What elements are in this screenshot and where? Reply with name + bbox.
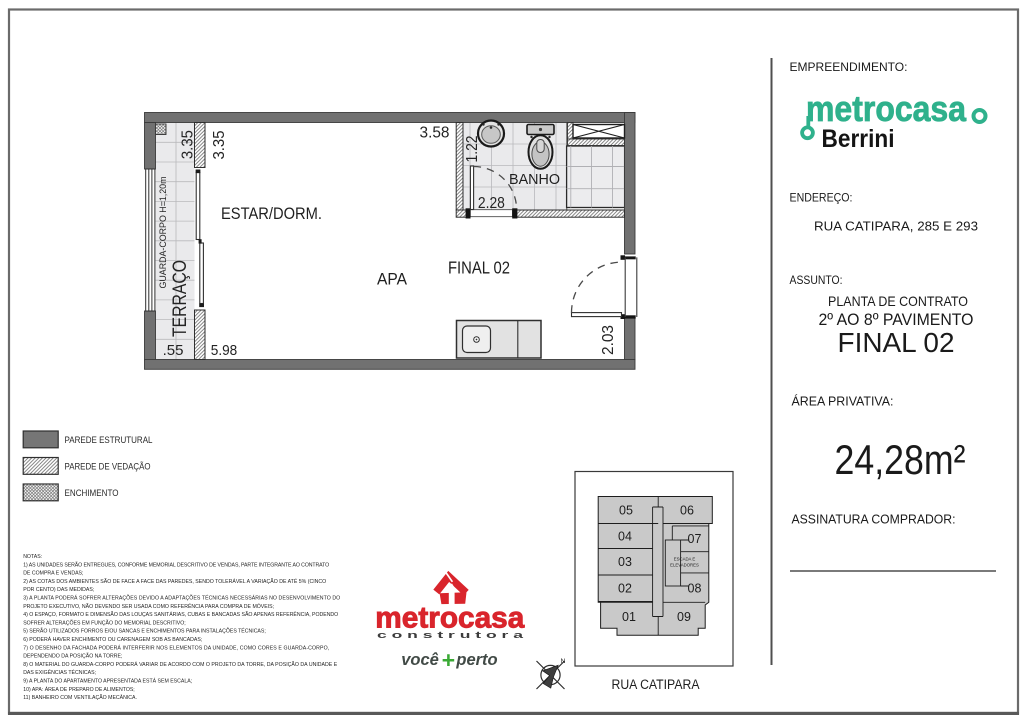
svg-text:24,28m²: 24,28m² (835, 436, 966, 483)
svg-text:8) O MATERIAL DO GUARDA-CORPO: 8) O MATERIAL DO GUARDA-CORPO PODERÁ VAR… (23, 661, 338, 668)
svg-text:03: 03 (618, 555, 632, 569)
svg-text:Berrini: Berrini (822, 125, 895, 153)
svg-text:02: 02 (618, 582, 632, 596)
svg-text:APA: APA (377, 271, 407, 289)
svg-text:1) AS UNIDADES SERÃO ENTREGUES: 1) AS UNIDADES SERÃO ENTREGUES, CONFORME… (23, 561, 329, 568)
svg-text:06: 06 (680, 504, 694, 518)
svg-text:ÁREA PRIVATIVA:: ÁREA PRIVATIVA: (792, 394, 894, 409)
svg-text:5.98: 5.98 (211, 342, 238, 359)
svg-text:7) O DESENHO DA FACHADA PODERÁ: 7) O DESENHO DA FACHADA PODERÁ INTERFERI… (23, 644, 329, 651)
svg-text:ESCADA E: ESCADA E (674, 557, 696, 562)
svg-text:TERRAÇO: TERRAÇO (170, 260, 191, 337)
svg-text:09: 09 (677, 610, 691, 624)
svg-text:07: 07 (688, 532, 702, 546)
svg-text:ENDEREÇO:: ENDEREÇO: (790, 191, 853, 205)
svg-text:N: N (561, 658, 566, 665)
svg-text:01: 01 (622, 610, 636, 624)
svg-text:6) PODERÁ HAVER ENCHIMENTO OU: 6) PODERÁ HAVER ENCHIMENTO OU CARENAGEM … (23, 636, 202, 643)
svg-text:PAREDE ESTRUTURAL: PAREDE ESTRUTURAL (65, 435, 153, 445)
svg-text:perto: perto (455, 651, 497, 669)
svg-text:POR CENTO) DAS MEDIDAS;: POR CENTO) DAS MEDIDAS; (23, 587, 94, 593)
svg-text:.55: .55 (163, 342, 184, 359)
svg-text:DAS EXIGÊNCIAS TÉCNICAS;: DAS EXIGÊNCIAS TÉCNICAS; (23, 668, 96, 676)
svg-text:3.35: 3.35 (179, 130, 196, 159)
svg-text:metrocasa: metrocasa (806, 88, 967, 129)
svg-text:04: 04 (618, 530, 632, 544)
svg-text:você: você (401, 651, 439, 669)
svg-text:PLANTA DE CONTRATO: PLANTA DE CONTRATO (828, 294, 968, 309)
svg-text:4) O ESPAÇO, FORMATO E DIMENSÃ: 4) O ESPAÇO, FORMATO E DIMENSÃO DAS LOUÇ… (23, 610, 338, 618)
svg-text:08: 08 (688, 582, 702, 596)
svg-text:+: + (441, 647, 454, 673)
svg-text:3.35: 3.35 (211, 130, 228, 159)
svg-text:BANHO: BANHO (509, 171, 560, 188)
svg-text:2.03: 2.03 (600, 325, 617, 355)
svg-text:11) BANHEIRO COM VENTILAÇÃO ME: 11) BANHEIRO COM VENTILAÇÃO MECÂNICA. (23, 694, 137, 701)
svg-text:FINAL 02: FINAL 02 (838, 327, 955, 358)
svg-text:NOTAS:: NOTAS: (23, 554, 42, 560)
svg-text:05: 05 (619, 504, 633, 518)
svg-text:PROJETO EXECUTIVO, NÃO DEVENDO: PROJETO EXECUTIVO, NÃO DEVENDO SER USADA… (23, 602, 274, 610)
svg-text:DE COMPRA E VENDAS;: DE COMPRA E VENDAS; (23, 571, 83, 577)
svg-text:GUARDA-CORPO H=1,20m: GUARDA-CORPO H=1,20m (158, 177, 168, 289)
svg-text:ENCHIMENTO: ENCHIMENTO (65, 488, 119, 498)
svg-text:c o n s t r u t o r a: c o n s t r u t o r a (377, 630, 525, 640)
svg-text:ESTAR/DORM.: ESTAR/DORM. (221, 204, 322, 223)
svg-text:FINAL 02: FINAL 02 (448, 258, 510, 278)
svg-text:PAREDE DE VEDAÇÃO: PAREDE DE VEDAÇÃO (65, 462, 151, 472)
svg-text:9) A PLANTA DO APARTAMENTO APR: 9) A PLANTA DO APARTAMENTO APRESENTADA E… (23, 678, 192, 685)
svg-text:SOFRER ALTERAÇÕES EM FUNÇÃO DO: SOFRER ALTERAÇÕES EM FUNÇÃO DO MEMORIAL … (23, 619, 186, 626)
svg-text:3.58: 3.58 (420, 124, 450, 141)
svg-text:10) APA: ÁREA DE PREPARO DE AL: 10) APA: ÁREA DE PREPARO DE ALIMENTOS; (23, 686, 135, 693)
svg-text:ELEVADORES: ELEVADORES (670, 563, 699, 568)
svg-text:5) SERÃO UTILIZADOS FORROS E/O: 5) SERÃO UTILIZADOS FORROS E/OU SANCAS E… (23, 628, 266, 635)
svg-text:RUA CATIPARA, 285 E 293: RUA CATIPARA, 285 E 293 (814, 219, 978, 234)
svg-text:1.22: 1.22 (464, 135, 481, 162)
svg-text:RUA CATIPARA: RUA CATIPARA (612, 677, 700, 692)
svg-text:DEPENDENDO DA POSIÇÃO NA TORRE: DEPENDENDO DA POSIÇÃO NA TORRE; (23, 653, 122, 660)
svg-text:3) A PLANTA PODERÁ SOFRER ALTE: 3) A PLANTA PODERÁ SOFRER ALTERAÇÕES DEV… (23, 595, 340, 602)
svg-text:ASSUNTO:: ASSUNTO: (790, 273, 843, 287)
svg-text:2.28: 2.28 (478, 195, 505, 212)
svg-text:2) AS COTAS DOS AMBIENTES SÃO: 2) AS COTAS DOS AMBIENTES SÃO DE FACE A … (23, 578, 326, 585)
svg-text:EMPREENDIMENTO:: EMPREENDIMENTO: (790, 60, 908, 74)
svg-text:ASSINATURA COMPRADOR:: ASSINATURA COMPRADOR: (792, 512, 956, 527)
